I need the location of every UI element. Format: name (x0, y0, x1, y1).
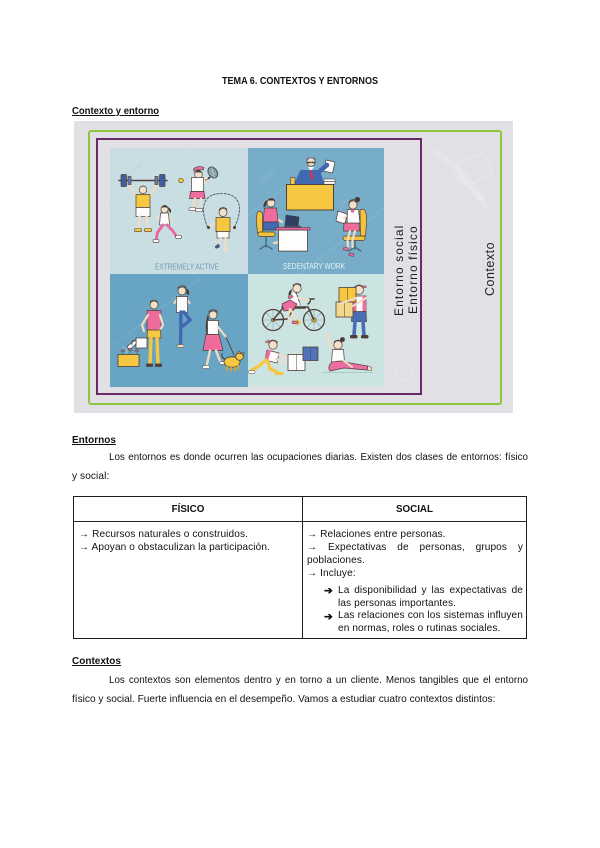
svg-text:SEDENTARY WORK: SEDENTARY WORK (283, 262, 346, 271)
svg-text:EXTREMELY ACTIVE: EXTREMELY ACTIVE (155, 263, 219, 272)
